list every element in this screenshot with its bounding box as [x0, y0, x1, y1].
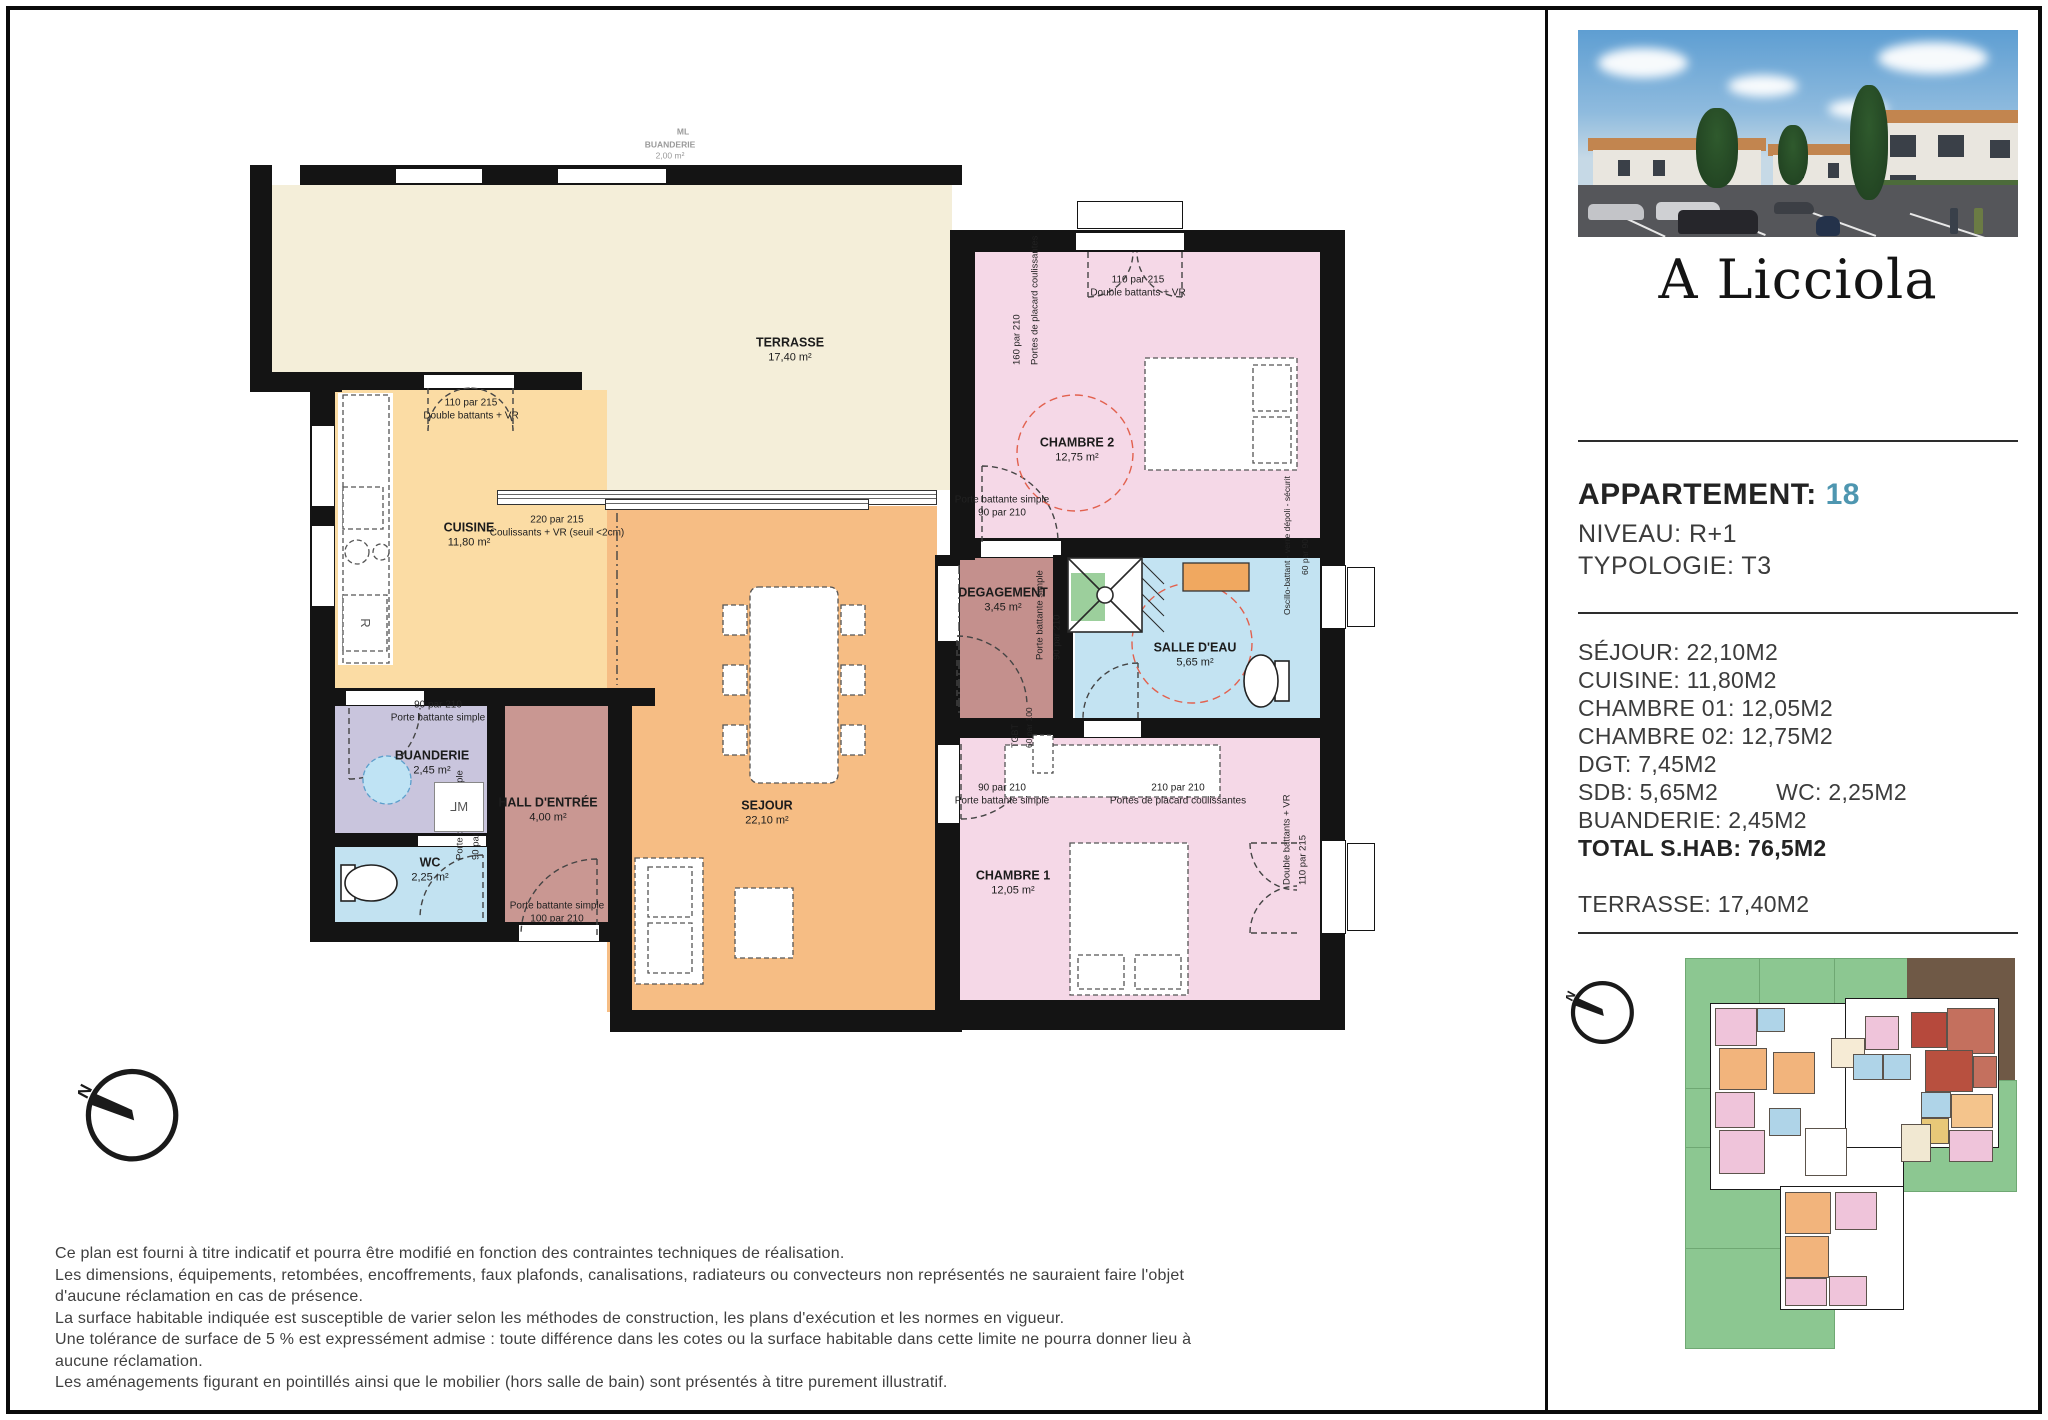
tgbt-label: TGBT	[1010, 692, 1020, 748]
sliding-door-label: 220 par 215Coulissants + VR (seuil <2cm)	[490, 515, 625, 540]
vertical-divider	[1545, 6, 1548, 1414]
room-areas-list: SÉJOUR: 22,10M2 CUISINE: 11,80M2 CHAMBRE…	[1578, 638, 1907, 918]
degagement-door-label: Porte battante simple	[1035, 540, 1046, 660]
list-item: CHAMBRE 02: 12,75M2	[1578, 722, 1907, 750]
chambre2-window-label: 110 par 215Double battants + VR	[1090, 275, 1185, 300]
fridge-label: R	[357, 618, 373, 627]
disclaimer-line: aucune réclamation.	[55, 1351, 1191, 1373]
site-plan	[1685, 958, 2015, 1348]
list-item-sdb-wc: SDB: 5,65M2WC: 2,25M2	[1578, 778, 1907, 806]
chambre2-door-label: Porte battante simple90 par 210	[955, 495, 1050, 520]
list-item: CUISINE: 11,80M2	[1578, 666, 1907, 694]
sejour-label: SEJOUR22,10 m²	[741, 798, 792, 827]
disclaimer-line: Les aménagements figurant en pointillés …	[55, 1372, 1191, 1394]
cuisine-label: CUISINE11,80 m²	[444, 520, 495, 549]
apartment-number: 18	[1826, 478, 1860, 511]
disclaimer-line: d'aucune réclamation en cas de présence.	[55, 1286, 1191, 1308]
rule-2	[1578, 612, 2018, 614]
chambre2-placard-label: Portes de placard coulissantes	[1030, 175, 1041, 365]
rule-1	[1578, 440, 2018, 442]
chambre1-label: CHAMBRE 112,05 m²	[976, 868, 1050, 897]
floor-plan: ML BUANDERIE2,00 m² 210 CHAMBRE13,15 m²	[245, 95, 1345, 1035]
disclaimer-line: Ce plan est fourni à titre indicatif et …	[55, 1243, 1191, 1265]
chambre1-placard-label: 210 par 210Portes de placard coulissante…	[1110, 783, 1246, 808]
wc-label: WC2,25 m²	[411, 855, 448, 884]
disclaimer-line: Les dimensions, équipements, retombées, …	[55, 1265, 1191, 1287]
typologie-line: TYPOLOGIE: T3	[1578, 552, 1772, 581]
degagement-door-dim: 90 par 210	[1052, 580, 1063, 660]
chambre1-door-label: 90 par 210Porte battante simple	[955, 783, 1050, 808]
compass-icon: N	[78, 1058, 182, 1162]
list-item: DGT: 7,45M2	[1578, 750, 1907, 778]
niveau-line: NIVEAU: R+1	[1578, 520, 1737, 549]
disclaimer-line: Une tolérance de surface de 5 % est expr…	[55, 1329, 1191, 1351]
disclaimer-text: Ce plan est fourni à titre indicatif et …	[55, 1243, 1191, 1394]
salle-eau-label: SALLE D'EAU5,65 m²	[1154, 640, 1237, 669]
chambre2-label: CHAMBRE 212,75 m²	[1040, 435, 1114, 464]
building-render-photo	[1578, 30, 2018, 237]
list-item: BUANDERIE: 2,45M2	[1578, 806, 1907, 834]
salle-eau-window-dim: 60 par 90	[1300, 495, 1310, 575]
washing-machine: ML	[434, 782, 484, 832]
chambre1-window-dim: 110 par 215	[1298, 745, 1309, 885]
chambre2-placard-dim: 160 par 210	[1012, 255, 1023, 365]
list-item: SÉJOUR: 22,10M2	[1578, 638, 1907, 666]
salle-eau-window-label: Oscillo-battant - verre dépoli - sécurit	[1282, 355, 1292, 615]
total-shab: TOTAL S.HAB: 76,5M2	[1578, 834, 1907, 862]
disclaimer-line: La surface habitable indiquée est suscep…	[55, 1308, 1191, 1330]
apartment-title: APPARTEMENT: 18	[1578, 478, 1860, 512]
chambre1-window-label: Double battants + VR	[1282, 705, 1293, 885]
tgbt-dim: 60 par 100	[1024, 682, 1034, 748]
site-compass-icon: N	[1566, 974, 1636, 1044]
brand-logo: A Licciola	[1578, 248, 2018, 311]
hall-label: HALL D'ENTRÉE4,00 m²	[498, 795, 597, 824]
hall-door-label: Porte battante simple100 par 210	[510, 901, 605, 926]
buanderie-door-label: 90 par 210Porte battante simple	[391, 700, 486, 725]
terrasse-label: TERRASSE17,40 m²	[756, 335, 824, 364]
list-item: CHAMBRE 01: 12,05M2	[1578, 694, 1907, 722]
cuisine-window-label: 110 par 215Double battants + VR	[423, 398, 518, 423]
terrasse-area-line: TERRASSE: 17,40M2	[1578, 890, 1907, 918]
plan-furniture-layer	[245, 95, 1345, 1035]
rule-3	[1578, 932, 2018, 934]
